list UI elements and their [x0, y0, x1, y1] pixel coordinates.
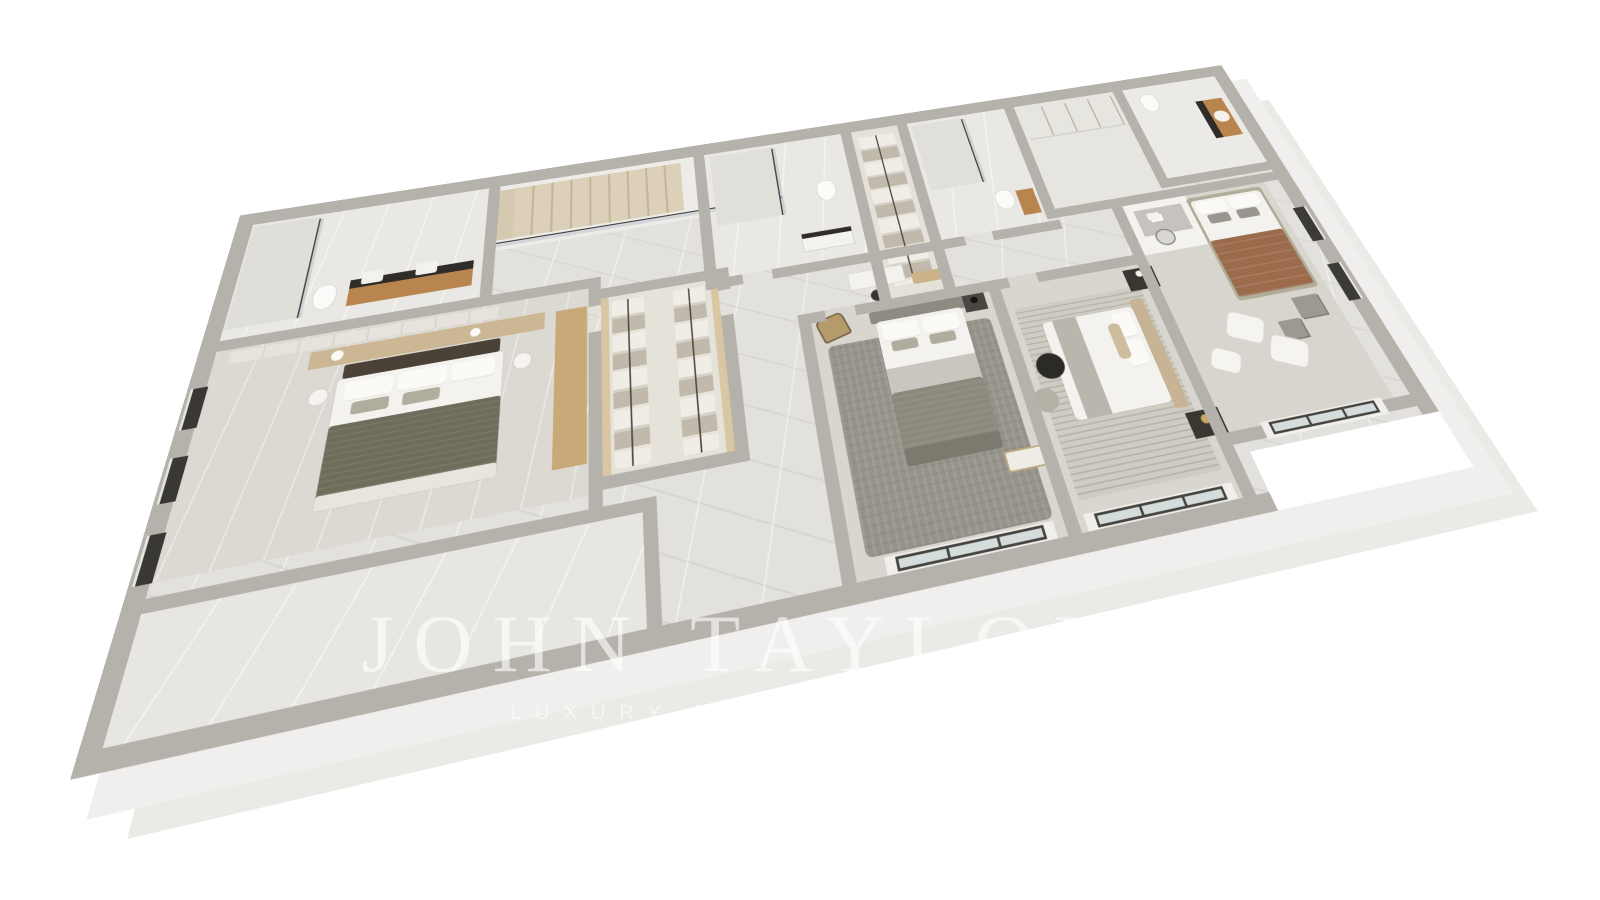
- bay-mullion: [946, 548, 951, 558]
- wall-bedroom1-east-s: [589, 331, 603, 510]
- bay-mullion: [1139, 506, 1145, 515]
- bay-mullion: [1182, 497, 1188, 506]
- floor-plan-render: JOHN TAYLOR LUXURY REAL ESTATE: [0, 0, 1600, 900]
- shower2-floor: [710, 148, 782, 226]
- building-slab: [70, 65, 1474, 780]
- bay-mullion: [1341, 409, 1347, 417]
- bay-mullion: [1306, 416, 1312, 424]
- bay-mullion: [997, 537, 1002, 546]
- wall-bedroom1-east-n: [589, 277, 601, 307]
- scene-3d: [0, 0, 1600, 900]
- bedroom1-wood-wardrobe: [552, 306, 587, 470]
